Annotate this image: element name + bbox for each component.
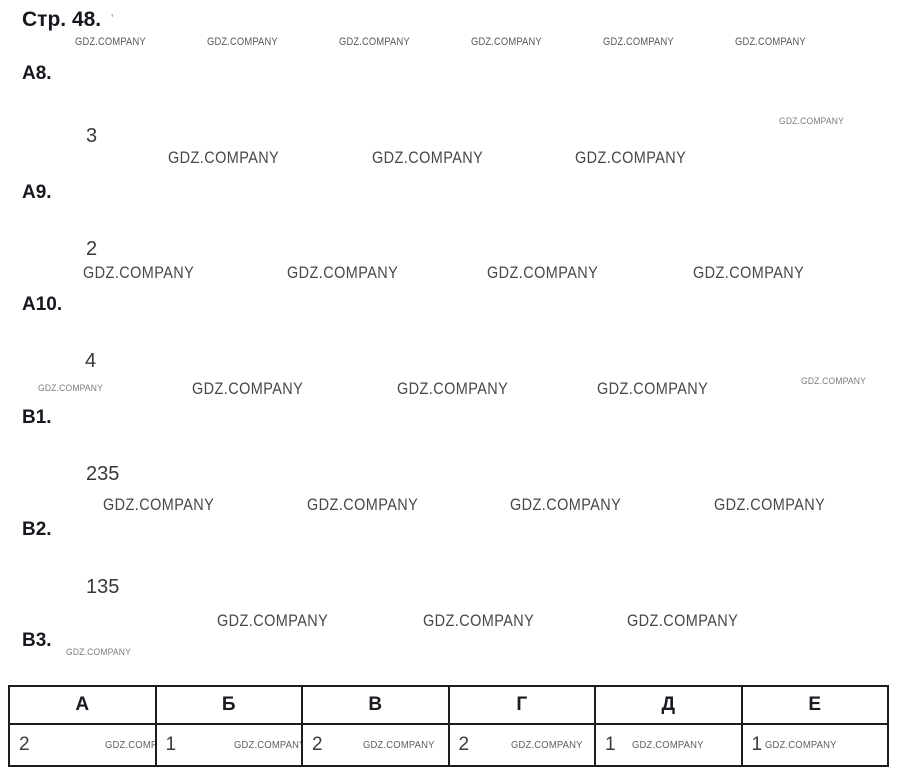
watermark: GDZ.COMPANY bbox=[83, 264, 194, 282]
table-header-cell-d: Д bbox=[595, 686, 742, 724]
table-value-g: 2 bbox=[459, 734, 470, 755]
table-value-d: 1 bbox=[605, 734, 616, 755]
table-header-cell-g: Г bbox=[449, 686, 596, 724]
watermark: GDZ.COMPANY bbox=[471, 37, 542, 49]
watermark: GDZ.COMPANY bbox=[510, 496, 621, 514]
item-label-a10: А10. bbox=[22, 295, 62, 315]
item-answer-b1: 235 bbox=[86, 464, 119, 485]
table-value-row: 2 GDZ.COMPANY 1 GDZ.COMPANY 2 GDZ.COMPAN… bbox=[9, 724, 888, 766]
watermark: GDZ.COMPANY bbox=[75, 37, 146, 49]
item-label-a9: А9. bbox=[22, 183, 52, 203]
watermark: GDZ.COMPANY bbox=[714, 496, 825, 514]
watermark: GDZ.COMPANY bbox=[597, 380, 708, 398]
watermark: GDZ.COMPANY bbox=[287, 264, 398, 282]
watermark: GDZ.COMPANY bbox=[339, 37, 410, 49]
page-title: Стр. 48. bbox=[22, 9, 101, 31]
table-header-row: А Б В Г Д Е bbox=[9, 686, 888, 724]
item-label-b3: В3. bbox=[22, 631, 52, 651]
watermark: GDZ.COMPANY bbox=[423, 612, 534, 630]
table-value-a: 2 bbox=[19, 734, 30, 755]
watermark: GDZ.COMPANY bbox=[397, 380, 508, 398]
watermark: GDZ.COMPANY bbox=[307, 496, 418, 514]
item-label-a8: А8. bbox=[22, 64, 52, 84]
watermark: GDZ.COMPANY bbox=[511, 739, 583, 751]
title-tick-mark: ' bbox=[111, 12, 113, 26]
item-answer-a9: 2 bbox=[86, 239, 97, 260]
table-value-cell-d: 1 GDZ.COMPANY bbox=[595, 724, 742, 766]
watermark: GDZ.COMPANY bbox=[103, 496, 214, 514]
item-label-b1: В1. bbox=[22, 408, 52, 428]
watermark: GDZ.COMPANY bbox=[234, 739, 303, 751]
table-header-cell-v: В bbox=[302, 686, 449, 724]
table-value-v: 2 bbox=[312, 734, 323, 755]
watermark: GDZ.COMPANY bbox=[632, 739, 704, 751]
watermark: GDZ.COMPANY bbox=[217, 612, 328, 630]
table-value-b: 1 bbox=[166, 734, 177, 755]
watermark: GDZ.COMPANY bbox=[603, 37, 674, 49]
watermark: GDZ.COMPANY bbox=[372, 149, 483, 167]
table-value-cell-b: 1 GDZ.COMPANY bbox=[156, 724, 303, 766]
watermark: GDZ.COMPANY bbox=[207, 37, 278, 49]
table-value-cell-e: 1 GDZ.COMPANY bbox=[742, 724, 889, 766]
watermark: GDZ.COMPANY bbox=[735, 37, 806, 49]
watermark: GDZ.COMPANY bbox=[575, 149, 686, 167]
item-answer-a10: 4 bbox=[85, 351, 96, 372]
watermark: GDZ.COMPANY bbox=[487, 264, 598, 282]
watermark: GDZ.COMPANY bbox=[779, 117, 844, 127]
watermark: GDZ.COMPANY bbox=[363, 739, 435, 751]
watermark: GDZ.COMPANY bbox=[627, 612, 738, 630]
table-value-cell-a: 2 GDZ.COMPANY bbox=[9, 724, 156, 766]
item-label-b2: В2. bbox=[22, 520, 52, 540]
watermark: GDZ.COMPANY bbox=[765, 739, 837, 751]
table-header-cell-a: А bbox=[9, 686, 156, 724]
item-answer-a8: 3 bbox=[86, 126, 97, 147]
watermark: GDZ.COMPANY bbox=[192, 380, 303, 398]
watermark: GDZ.COMPANY bbox=[801, 377, 866, 387]
table-value-cell-v: 2 GDZ.COMPANY bbox=[302, 724, 449, 766]
watermark: GDZ.COMPANY bbox=[38, 384, 103, 394]
table-header-cell-b: Б bbox=[156, 686, 303, 724]
watermark: GDZ.COMPANY bbox=[66, 648, 131, 658]
b3-answer-table: А Б В Г Д Е 2 GDZ.COMPANY 1 GDZ.COMPANY … bbox=[8, 685, 889, 767]
table-value-cell-g: 2 GDZ.COMPANY bbox=[449, 724, 596, 766]
watermark: GDZ.COMPANY bbox=[168, 149, 279, 167]
table-header-cell-e: Е bbox=[742, 686, 889, 724]
item-answer-b2: 135 bbox=[86, 577, 119, 598]
watermark: GDZ.COMPANY bbox=[105, 739, 156, 751]
table-value-e: 1 bbox=[752, 734, 763, 755]
watermark: GDZ.COMPANY bbox=[693, 264, 804, 282]
